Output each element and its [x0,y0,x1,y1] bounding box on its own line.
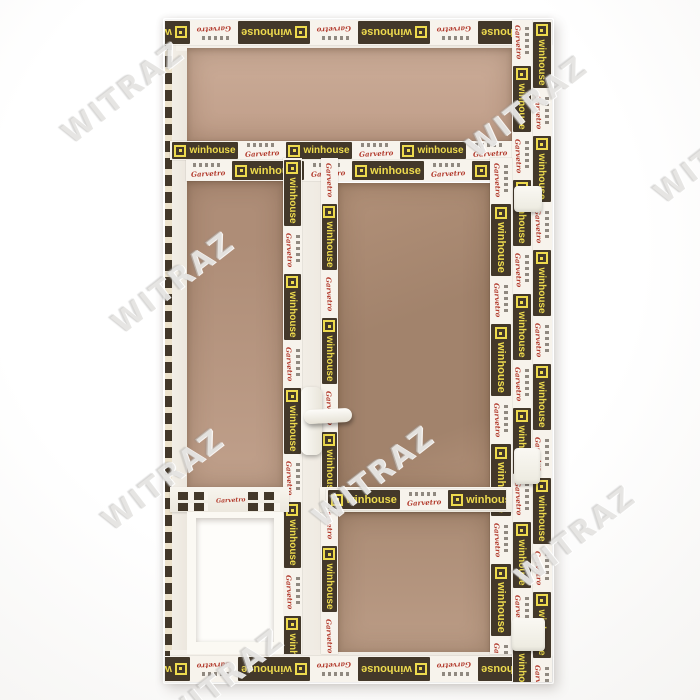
product-photo: winhouse Garvetro winhouse Garvetro winh… [0,0,700,700]
winhouse-logo-icon [536,252,548,264]
subbrand-label: Garvetro [514,139,525,174]
frame-left-edge-tape [165,22,172,680]
tape-subbrand-segment: Garvetro [490,518,512,562]
tape-subbrand-segment: Garvetro [532,90,552,134]
door-handle-lever [304,408,353,424]
winhouse-logo-icon [495,327,507,339]
subbrand-label: Garvetro [245,148,280,159]
tape-subbrand-segment: Garvetro [283,570,302,614]
micro-text [526,369,530,398]
micro-text [319,673,348,677]
subbrand-label: Garvetro [534,551,545,586]
brand-label: winhouse [361,663,412,675]
divider-tape-chip [248,503,280,511]
subbrand-label: Garvetro [359,148,394,159]
tape-subbrand-segment: Garvetro [402,489,446,510]
tape-subbrand-segment: Garvetro [490,158,512,202]
subbrand-label: Garvetro [534,209,545,244]
tape-brand-segment: winhouse [533,250,551,316]
tape-top-frame: winhouse Garvetro winhouse Garvetro winh… [165,20,552,45]
tape-brand-segment: winhouse [322,546,337,612]
winhouse-logo-icon [475,165,487,177]
subbrand-label: Garvetro [493,163,504,198]
winhouse-logo-icon [324,320,336,332]
subbrand-label: Garvetro [197,661,232,672]
brand-label: winhouse [517,653,528,682]
tape-subbrand-segment: Garvetro [321,614,338,654]
tape-subbrand-segment: Garvetro [512,20,532,64]
tape-brand-segment: winhouse [322,204,337,270]
tape-subbrand-segment: Garvetro [354,141,398,160]
subbrand-label: Garvetro [191,168,226,179]
winhouse-logo-icon [174,145,186,157]
door-glass-lower [338,512,490,652]
tape-subbrand-segment: Garvetro [512,362,532,406]
door-glass-upper [338,183,490,487]
winhouse-logo-icon [175,27,187,39]
tape-sash-top-rails: Garvetro winhouse Garvetro winhouse Garv… [186,160,542,181]
brand-label: winhouse [346,494,397,506]
divider-tape-chip [248,492,280,500]
door-hinge-middle [514,448,540,484]
brand-label: winhouse [165,663,172,675]
micro-text [546,553,550,582]
brand-label: winhouse [417,145,463,156]
winhouse-logo-icon [495,567,507,579]
micro-text [409,492,438,496]
tape-subbrand-segment: Garvetro [532,318,552,362]
winhouse-logo-icon [536,594,548,606]
subbrand-label: Garvetro [197,24,232,35]
brand-label: winhouse [241,27,292,39]
brand-label: winhouse [537,381,548,427]
winhouse-logo-icon [495,447,507,459]
subbrand-label: Garvetro [437,661,472,672]
winhouse-logo-icon [287,162,299,174]
micro-text [296,349,300,378]
micro-text [475,143,504,147]
brand-label: winhouse [287,519,298,565]
tape-subbrand-segment: Garvetro [186,160,230,181]
tape-subbrand-segment: Garvetro [432,656,476,682]
tape-subbrand-segment: Garvetro [532,546,552,590]
winhouse-logo-icon [287,276,299,288]
tape-subbrand-segment: Garvetro [490,638,512,654]
winhouse-logo-icon [324,434,336,446]
tape-subbrand-segment: Garvetro [321,272,338,316]
brand-label: winhouse [287,633,298,654]
brand-label: winhouse [324,563,335,609]
winhouse-logo-icon [331,494,343,506]
subbrand-label: Garvetro [317,24,352,35]
divider-tape-chip [178,503,208,511]
winhouse-logo-icon [516,410,528,422]
micro-text [199,36,228,40]
tape-subbrand-segment: Garvetro [490,398,512,442]
brand-label: winhouse [287,177,298,223]
watermark: WITRAZ [647,79,700,211]
side-window-glass [187,181,283,487]
tape-brand-segment: winhouse [328,490,400,509]
micro-text [505,645,509,654]
winhouse-logo-icon [536,138,548,150]
subbrand-label: Garvetro [431,168,466,179]
brand-label: winhouse [495,582,507,633]
tape-brand-segment: winhouse [491,324,511,396]
tape-subbrand-segment: Garvetro [512,248,532,292]
brand-label: winhouse [517,539,528,585]
tape-door-glazing-bar: winhouse Garvetro winhouse Garvetro [326,489,506,510]
brand-label: winhouse [495,222,507,273]
tape-brand-segment: winhouse [358,657,430,681]
winhouse-logo-icon [536,24,548,36]
micro-text [247,143,276,147]
brand-label: winhouse [517,311,528,357]
winhouse-logo-icon [516,524,528,536]
micro-text [296,235,300,264]
divider-tape-chip [178,492,208,500]
brand-label: winhouse [241,663,292,675]
micro-text [296,577,300,606]
brand-label: winhouse [287,405,298,451]
brand-label: winhouse [370,165,421,177]
subbrand-label: Garvetro [514,25,525,60]
tape-right-frame-inner: Garvetro winhouse Garvetro winhouse Garv… [512,20,532,682]
micro-text [193,163,222,167]
tape-brand-segment: winhouse [286,142,352,159]
winhouse-logo-icon [287,390,299,402]
tape-subbrand-segment: Garvetro [512,134,532,178]
brand-label: winhouse [495,342,507,393]
micro-text [526,141,530,170]
tape-subbrand-segment: Garvetro [192,20,236,45]
tape-brand-segment: winhouse [491,564,511,636]
micro-text [439,36,468,40]
tape-brand-segment: winhouse [533,364,551,430]
micro-text [433,163,462,167]
subbrand-label: Garvetro [514,367,525,402]
micro-text [296,463,300,492]
winhouse-logo-icon [295,663,307,675]
side-window-bottom-panel [187,512,283,654]
tape-subbrand-segment: Garvetro [312,20,356,45]
tape-subbrand-segment: Garvetro [240,141,284,160]
panel-inner-face [196,518,274,642]
brand-label: winhouse [537,39,548,85]
micro-text [439,673,468,677]
micro-text [546,325,550,354]
tape-brand-segment: winhouse [322,318,337,384]
tape-brand-segment: winhouse [513,522,531,588]
tape-brand-segment: winhouse [165,657,190,681]
winhouse-logo-icon [495,207,507,219]
tape-brand-segment: winhouse [238,21,310,44]
micro-text [505,405,509,434]
micro-text [546,439,550,468]
subbrand-label: Garvetro [284,575,295,610]
subbrand-label: Garvetro [534,665,545,682]
door-hinge-top [514,186,542,212]
subbrand-label: Garvetro [493,283,504,318]
tape-brand-segment: winhouse [400,142,466,159]
micro-text [505,525,509,554]
subbrand-label: Garvetro [437,24,472,35]
subbrand-label: Garvetro [534,323,545,358]
winhouse-logo-icon [451,494,463,506]
micro-text [505,285,509,314]
subbrand-label: Garvetro [493,643,504,654]
winhouse-logo-icon [175,663,187,675]
subbrand-label: Garvetro [324,619,335,654]
tape-brand-segment: winhouse [238,657,310,681]
tape-brand-segment: winhouse [513,294,531,360]
tape-subbrand-segment: Garvetro [426,160,470,181]
subbrand-label: Garvetro [514,481,525,516]
subbrand-label: Garvetro [284,347,295,382]
subbrand-label: Garvetro [493,403,504,438]
tape-subbrand-segment: Garvetro [321,158,338,202]
tape-door-right-stile: Garvetro winhouse Garvetro winhouse Garv… [490,158,512,654]
tape-subbrand-segment: Garvetro [312,656,356,682]
subbrand-label: Garvetro [324,277,335,312]
micro-text [546,667,550,682]
winhouse-logo-icon [415,27,427,39]
tape-brand-segment: winhouse [533,478,551,544]
winhouse-logo-icon [402,145,414,157]
tape-subbrand-segment: Garvetro [432,20,476,45]
brand-label: winhouse [189,145,235,156]
tape-brand-segment: winhouse [358,21,430,44]
subbrand-label: Garvetro [493,523,504,558]
tape-door-left-stile: Garvetro winhouse Garvetro winhouse Garv… [321,158,338,654]
tape-brand-segment: winhouse [172,142,238,159]
micro-text [319,36,348,40]
brand-label: winhouse [324,221,335,267]
tape-brand-segment: winhouse [284,274,301,340]
tape-brand-segment: winhouse [165,21,190,44]
subbrand-label: Garvetro [284,233,295,268]
winhouse-logo-icon [516,68,528,80]
micro-text [546,211,550,240]
brand-label: winhouse [303,145,349,156]
tape-brand-segment: winhouse [284,388,301,454]
subbrand-label: Garvetro [534,95,545,130]
brand-label: winhouse [361,27,412,39]
brand-label: winhouse [466,494,506,506]
tape-brand-segment: winhouse [533,22,551,88]
tape-brand-segment: winhouse [352,161,424,180]
brand-label: winhouse [165,27,172,39]
winhouse-logo-icon [324,206,336,218]
subbrand-label: Garvetro [407,497,442,508]
tape-brand-segment: winhouse [284,616,301,654]
brand-label: winhouse [537,267,548,313]
tape-right-frame-outer: winhouse Garvetro winhouse Garvetro winh… [532,20,552,682]
transom-glass [187,48,512,141]
tape-brand-segment: winhouse [513,66,531,132]
micro-text [546,97,550,126]
winhouse-logo-icon [324,548,336,560]
subbrand-label: Garvetro [317,661,352,672]
micro-text [526,255,530,284]
winhouse-logo-icon [516,296,528,308]
winhouse-logo-icon [235,165,247,177]
micro-text [361,143,390,147]
tape-subbrand-segment: Garvetro [283,342,302,386]
winhouse-logo-icon [355,165,367,177]
tape-subbrand-segment: Garvetro [532,660,552,682]
tape-brand-segment: winhouse [448,490,506,509]
brand-label: winhouse [324,335,335,381]
tape-subbrand-segment: Garvetro [192,656,236,682]
subbrand-label: Garvetro [324,163,335,198]
brand-label: winhouse [287,291,298,337]
winhouse-logo-icon [536,366,548,378]
brand-label: winhouse [537,495,548,541]
tape-brand-segment: winhouse [284,160,301,226]
micro-text [526,27,530,56]
tape-subbrand-segment: Garvetro [283,228,302,272]
winhouse-logo-icon [287,618,299,630]
subbrand-label: Garvetro [514,253,525,288]
tape-subbrand-segment: Garvetro [490,278,512,322]
tape-brand-segment: winhouse [491,204,511,276]
tape-bottom-frame: winhouse Garvetro winhouse Garvetro winh… [165,656,552,682]
brand-label: winhouse [517,83,528,129]
tape-mullion-left: winhouse Garvetro winhouse Garvetro winh… [283,158,302,654]
micro-text [526,483,530,512]
winhouse-logo-icon [415,663,427,675]
winhouse-logo-icon [295,27,307,39]
door-hinge-bottom [512,618,545,651]
micro-text [199,673,228,677]
micro-text [505,165,509,194]
winhouse-logo-icon [288,145,300,157]
